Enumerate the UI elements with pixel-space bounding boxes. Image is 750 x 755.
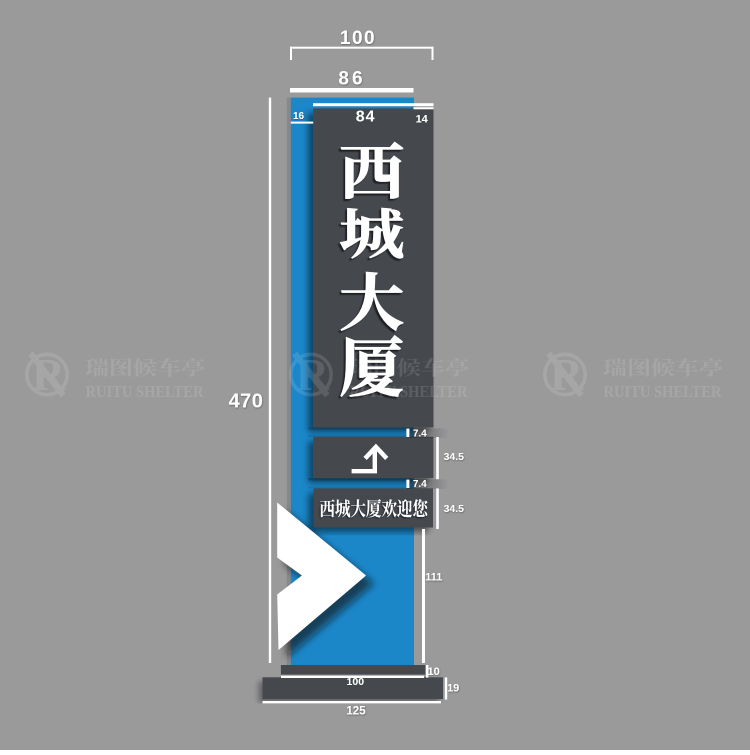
- svg-text:111: 111: [425, 571, 442, 583]
- svg-text:16: 16: [293, 111, 305, 122]
- svg-text:7.4: 7.4: [413, 479, 427, 490]
- svg-text:7.4: 7.4: [413, 429, 427, 440]
- svg-text:470: 470: [229, 390, 264, 412]
- svg-text:100: 100: [340, 28, 376, 49]
- svg-text:R: R: [550, 349, 584, 400]
- svg-text:R: R: [32, 349, 66, 400]
- svg-text:19: 19: [447, 683, 459, 695]
- svg-text:84: 84: [356, 109, 376, 126]
- svg-text:14: 14: [416, 113, 429, 125]
- svg-text:125: 125: [346, 706, 366, 718]
- svg-text:R: R: [296, 349, 330, 400]
- svg-text:34.5: 34.5: [444, 451, 465, 463]
- svg-text:RUITU SHELTER: RUITU SHELTER: [350, 382, 469, 401]
- svg-text:10: 10: [427, 666, 439, 678]
- svg-text:86: 86: [338, 68, 365, 89]
- svg-text:100: 100: [347, 676, 365, 688]
- svg-text:RUITU SHELTER: RUITU SHELTER: [86, 382, 205, 401]
- svg-text:RUITU SHELTER: RUITU SHELTER: [604, 382, 723, 401]
- svg-text:34.5: 34.5: [444, 503, 465, 515]
